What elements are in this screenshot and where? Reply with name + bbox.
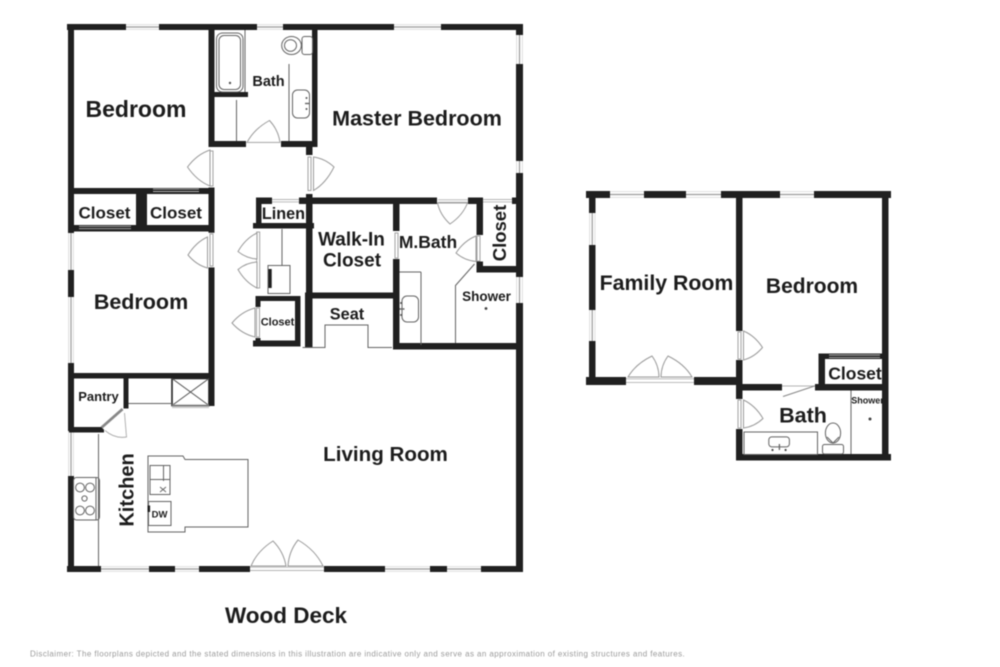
svg-text:Closet: Closet bbox=[323, 251, 382, 272]
svg-text:Wood Deck: Wood Deck bbox=[225, 603, 348, 628]
svg-text:Bath: Bath bbox=[779, 404, 827, 428]
svg-text:DW: DW bbox=[152, 510, 168, 521]
svg-text:Linen: Linen bbox=[262, 205, 305, 223]
svg-text:Bedroom: Bedroom bbox=[766, 275, 858, 298]
svg-text:Bedroom: Bedroom bbox=[94, 290, 188, 314]
svg-text:Disclaimer: The floorplans dep: Disclaimer: The floorplans depicted and … bbox=[30, 650, 685, 659]
svg-text:Closet: Closet bbox=[261, 317, 295, 329]
svg-text:Master Bedroom: Master Bedroom bbox=[332, 107, 502, 131]
svg-text:Pantry: Pantry bbox=[78, 389, 119, 404]
svg-text:Shower: Shower bbox=[462, 289, 512, 304]
svg-text:Living Room: Living Room bbox=[323, 443, 448, 466]
svg-text:Closet: Closet bbox=[150, 204, 202, 223]
svg-text:Seat: Seat bbox=[330, 306, 365, 324]
svg-text:Family Room: Family Room bbox=[600, 271, 734, 295]
svg-text:Bath: Bath bbox=[252, 74, 284, 90]
svg-text:Kitchen: Kitchen bbox=[117, 453, 139, 526]
svg-text:Closet: Closet bbox=[489, 205, 510, 262]
svg-text:Closet: Closet bbox=[79, 204, 131, 223]
svg-text:Walk-In: Walk-In bbox=[318, 230, 385, 251]
svg-text:Bedroom: Bedroom bbox=[86, 96, 187, 122]
svg-text:Shower: Shower bbox=[851, 396, 884, 406]
svg-text:M.Bath: M.Bath bbox=[399, 232, 457, 252]
svg-text:Closet: Closet bbox=[828, 364, 882, 384]
